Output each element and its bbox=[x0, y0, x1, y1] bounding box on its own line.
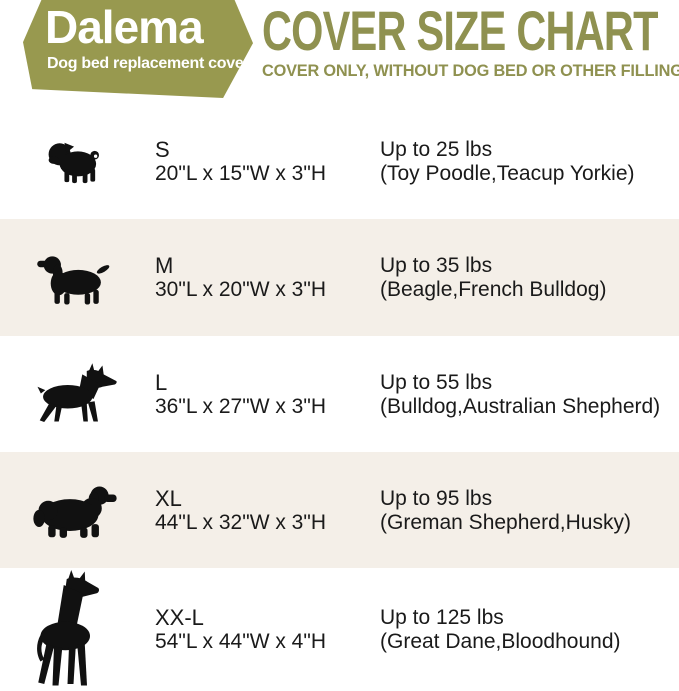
breeds-text: (Great Dane,Bloodhound) bbox=[380, 630, 679, 654]
dimensions-text: 54"L x 44"W x 4"H bbox=[155, 630, 380, 654]
size-cell: L 36"L x 27"W x 3"H bbox=[150, 370, 380, 419]
table-row-m: M 30"L x 20"W x 3"H Up to 35 lbs (Beagle… bbox=[0, 219, 679, 336]
weight-cell: Up to 25 lbs (Toy Poodle,Teacup Yorkie) bbox=[380, 137, 679, 186]
dimensions-text: 20"L x 15"W x 3"H bbox=[155, 162, 380, 186]
brand-tagline: Dog bed replacement cover bbox=[47, 55, 249, 73]
table-row-xl: XL 44"L x 32"W x 3"H Up to 95 lbs (Grema… bbox=[0, 452, 679, 568]
dimensions-text: 44"L x 32"W x 3"H bbox=[155, 511, 380, 535]
icon-cell bbox=[0, 137, 150, 185]
brand-badge: Dalema Dog bed replacement cover bbox=[23, 0, 253, 98]
weight-cell: Up to 95 lbs (Greman Shepherd,Husky) bbox=[380, 486, 679, 535]
page-subtitle: COVER ONLY, WITHOUT DOG BED OR OTHER FIL… bbox=[262, 62, 679, 80]
title-block: COVER SIZE CHART COVER ONLY, WITHOUT DOG… bbox=[262, 0, 679, 80]
weight-text: Up to 125 lbs bbox=[380, 605, 679, 630]
doberman-icon bbox=[33, 363, 117, 425]
size-label: L bbox=[155, 370, 380, 395]
size-cell: XX-L 54"L x 44"W x 4"H bbox=[150, 605, 380, 654]
breeds-text: (Beagle,French Bulldog) bbox=[380, 278, 679, 302]
breeds-text: (Bulldog,Australian Shepherd) bbox=[380, 395, 679, 419]
size-chart-infographic: Dalema Dog bed replacement cover COVER S… bbox=[0, 0, 679, 691]
icon-cell bbox=[0, 251, 150, 305]
size-label: XL bbox=[155, 486, 380, 511]
table-row-s: S 20"L x 15"W x 3"H Up to 25 lbs (Toy Po… bbox=[0, 103, 679, 219]
page-title: COVER SIZE CHART bbox=[262, 2, 658, 60]
icon-cell bbox=[0, 570, 150, 690]
weight-text: Up to 55 lbs bbox=[380, 370, 679, 395]
great-dane-icon bbox=[32, 570, 118, 690]
table-row-xxl: XX-L 54"L x 44"W x 4"H Up to 125 lbs (Gr… bbox=[0, 568, 679, 691]
pug-icon bbox=[46, 137, 104, 185]
newfoundland-icon bbox=[32, 482, 118, 539]
weight-text: Up to 35 lbs bbox=[380, 253, 679, 278]
breeds-text: (Greman Shepherd,Husky) bbox=[380, 511, 679, 535]
icon-cell bbox=[0, 363, 150, 425]
size-cell: XL 44"L x 32"W x 3"H bbox=[150, 486, 380, 535]
size-label: M bbox=[155, 253, 380, 278]
weight-cell: Up to 125 lbs (Great Dane,Bloodhound) bbox=[380, 605, 679, 654]
header: Dalema Dog bed replacement cover COVER S… bbox=[0, 0, 679, 103]
cocker-spaniel-icon bbox=[37, 251, 113, 305]
weight-text: Up to 25 lbs bbox=[380, 137, 679, 162]
weight-cell: Up to 55 lbs (Bulldog,Australian Shepher… bbox=[380, 370, 679, 419]
breeds-text: (Toy Poodle,Teacup Yorkie) bbox=[380, 162, 679, 186]
size-cell: S 20"L x 15"W x 3"H bbox=[150, 137, 380, 186]
dimensions-text: 36"L x 27"W x 3"H bbox=[155, 395, 380, 419]
weight-text: Up to 95 lbs bbox=[380, 486, 679, 511]
table-row-l: L 36"L x 27"W x 3"H Up to 55 lbs (Bulldo… bbox=[0, 336, 679, 452]
size-cell: M 30"L x 20"W x 3"H bbox=[150, 253, 380, 302]
weight-cell: Up to 35 lbs (Beagle,French Bulldog) bbox=[380, 253, 679, 302]
size-label: S bbox=[155, 137, 380, 162]
icon-cell bbox=[0, 482, 150, 539]
size-label: XX-L bbox=[155, 605, 380, 630]
dimensions-text: 30"L x 20"W x 3"H bbox=[155, 278, 380, 302]
brand-name: Dalema bbox=[45, 2, 203, 52]
